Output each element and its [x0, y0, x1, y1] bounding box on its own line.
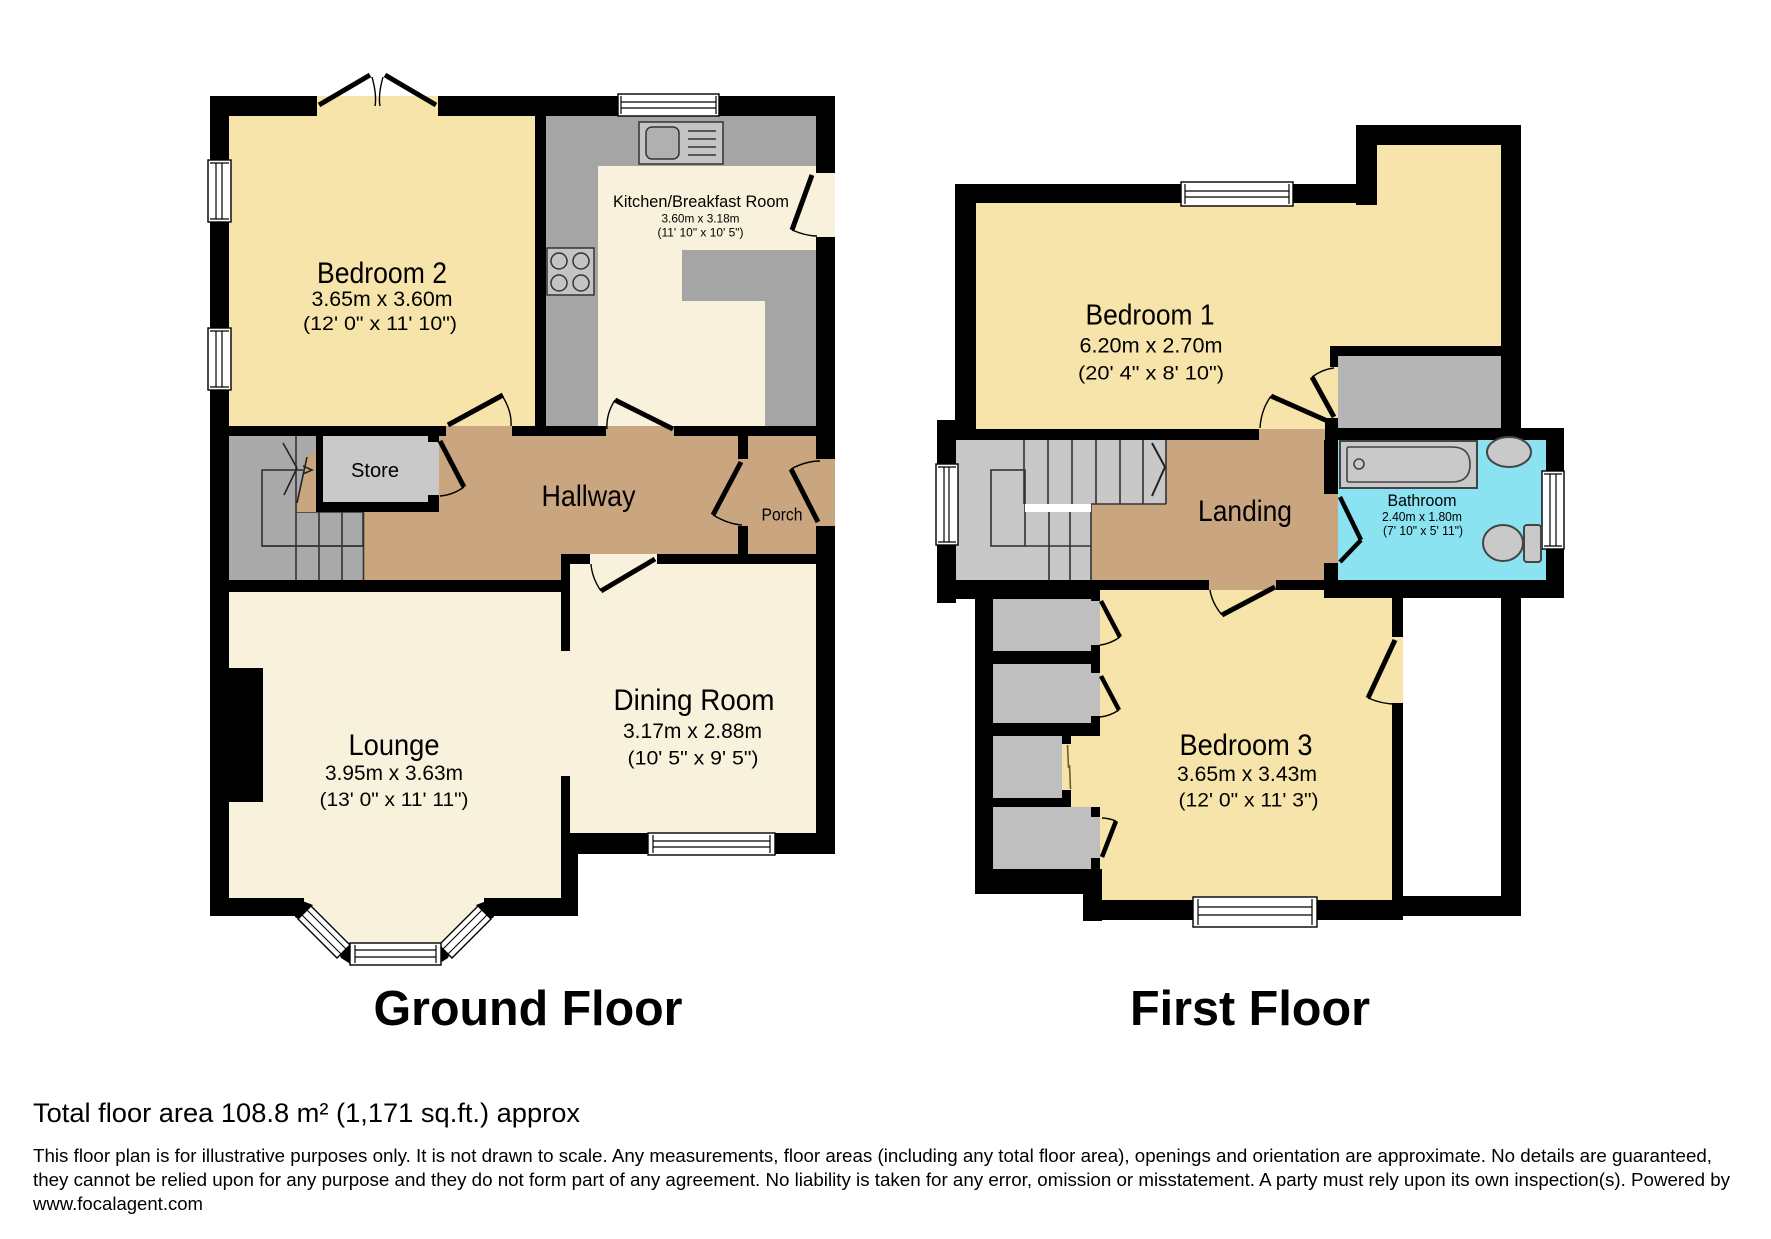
- svg-text:First Floor: First Floor: [1130, 981, 1370, 1036]
- svg-text:Hallway: Hallway: [542, 480, 636, 513]
- svg-text:2.40m x 1.80m: 2.40m x 1.80m: [1382, 509, 1462, 524]
- svg-text:they cannot be relied upon for: they cannot be relied upon for any purpo…: [33, 1169, 1731, 1190]
- svg-text:This floor plan is for illustr: This floor plan is for illustrative purp…: [33, 1145, 1712, 1166]
- svg-text:Ground Floor: Ground Floor: [374, 981, 683, 1036]
- svg-text:3.65m x 3.43m: 3.65m x 3.43m: [1177, 762, 1317, 786]
- svg-text:www.focalagent.com: www.focalagent.com: [32, 1193, 203, 1214]
- svg-text:Landing: Landing: [1198, 495, 1292, 528]
- svg-text:3.95m x 3.63m: 3.95m x 3.63m: [325, 761, 463, 785]
- svg-text:Store: Store: [351, 460, 399, 482]
- svg-text:Lounge: Lounge: [349, 729, 440, 762]
- svg-text:(11' 10" x 10' 5"): (11' 10" x 10' 5"): [658, 228, 744, 240]
- svg-text:Bedroom 3: Bedroom 3: [1180, 729, 1313, 762]
- svg-text:Porch: Porch: [762, 505, 803, 525]
- svg-text:Kitchen/Breakfast Room: Kitchen/Breakfast Room: [613, 193, 789, 211]
- svg-text:(12' 0" x 11' 3"): (12' 0" x 11' 3"): [1179, 790, 1319, 812]
- svg-text:(20' 4" x 8' 10"): (20' 4" x 8' 10"): [1078, 363, 1224, 385]
- svg-text:Bedroom 1: Bedroom 1: [1086, 300, 1215, 332]
- svg-text:Total floor area 108.8 m² (1,1: Total floor area 108.8 m² (1,171 sq.ft.)…: [33, 1098, 581, 1128]
- svg-text:Bathroom: Bathroom: [1388, 491, 1457, 510]
- svg-text:Dining Room: Dining Room: [614, 684, 775, 717]
- svg-text:6.20m x 2.70m: 6.20m x 2.70m: [1080, 334, 1223, 358]
- svg-text:(12' 0" x 11' 10"): (12' 0" x 11' 10"): [303, 313, 457, 335]
- svg-text:(7' 10" x 5' 11"): (7' 10" x 5' 11"): [1383, 524, 1463, 538]
- svg-text:(13' 0" x 11' 11"): (13' 0" x 11' 11"): [320, 789, 469, 811]
- svg-text:3.60m x 3.18m: 3.60m x 3.18m: [662, 212, 740, 226]
- svg-text:3.65m x 3.60m: 3.65m x 3.60m: [312, 288, 453, 311]
- svg-text:(10' 5" x 9' 5"): (10' 5" x 9' 5"): [628, 748, 759, 770]
- svg-text:Bedroom 2: Bedroom 2: [317, 257, 447, 290]
- svg-text:3.17m x 2.88m: 3.17m x 2.88m: [623, 719, 762, 743]
